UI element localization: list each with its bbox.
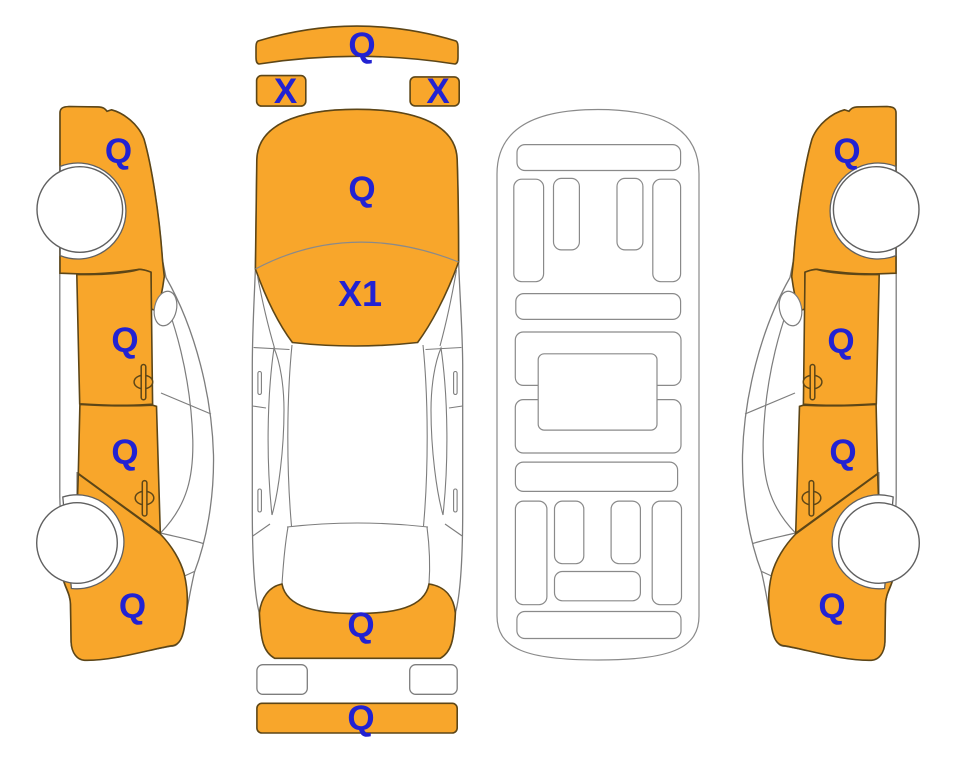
- svg-text:Q: Q: [829, 433, 856, 472]
- svg-text:Q: Q: [111, 433, 138, 472]
- svg-text:Q: Q: [105, 132, 132, 171]
- svg-text:Q: Q: [111, 321, 138, 360]
- svg-text:Q: Q: [347, 606, 374, 645]
- svg-text:Q: Q: [119, 587, 146, 626]
- svg-text:X: X: [274, 72, 298, 111]
- svg-text:Q: Q: [833, 132, 860, 171]
- svg-text:Q: Q: [348, 26, 375, 65]
- svg-text:Q: Q: [347, 699, 374, 738]
- svg-text:X: X: [426, 72, 450, 111]
- svg-text:Q: Q: [827, 322, 854, 361]
- svg-text:Q: Q: [348, 170, 375, 209]
- svg-text:Q: Q: [818, 587, 845, 626]
- svg-text:X1: X1: [338, 273, 382, 314]
